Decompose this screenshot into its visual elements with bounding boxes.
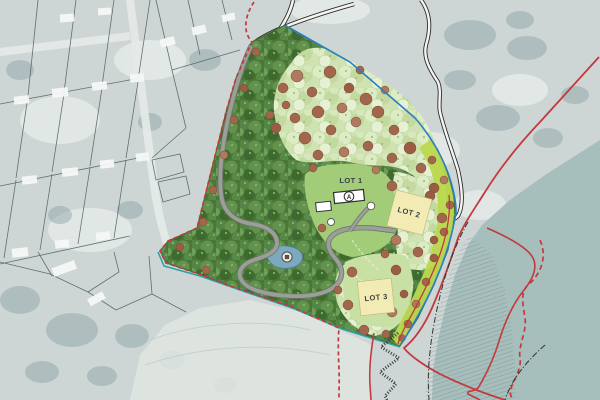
building-b-footprint <box>316 201 332 212</box>
pond-structure-marker <box>282 252 292 262</box>
site-plan-map: LOT 2 LOT 3 LOT 1 A <box>0 0 600 400</box>
lot-3: LOT 3 <box>357 278 394 315</box>
building-a-marker: A <box>344 192 354 202</box>
water-tank-2 <box>328 219 335 226</box>
lot-1-label: LOT 1 <box>339 176 362 185</box>
water-tank-1 <box>367 202 375 210</box>
building-a-marker-label: A <box>347 195 352 201</box>
site-plan-canvas: LOT 2 LOT 3 LOT 1 A <box>0 0 600 400</box>
